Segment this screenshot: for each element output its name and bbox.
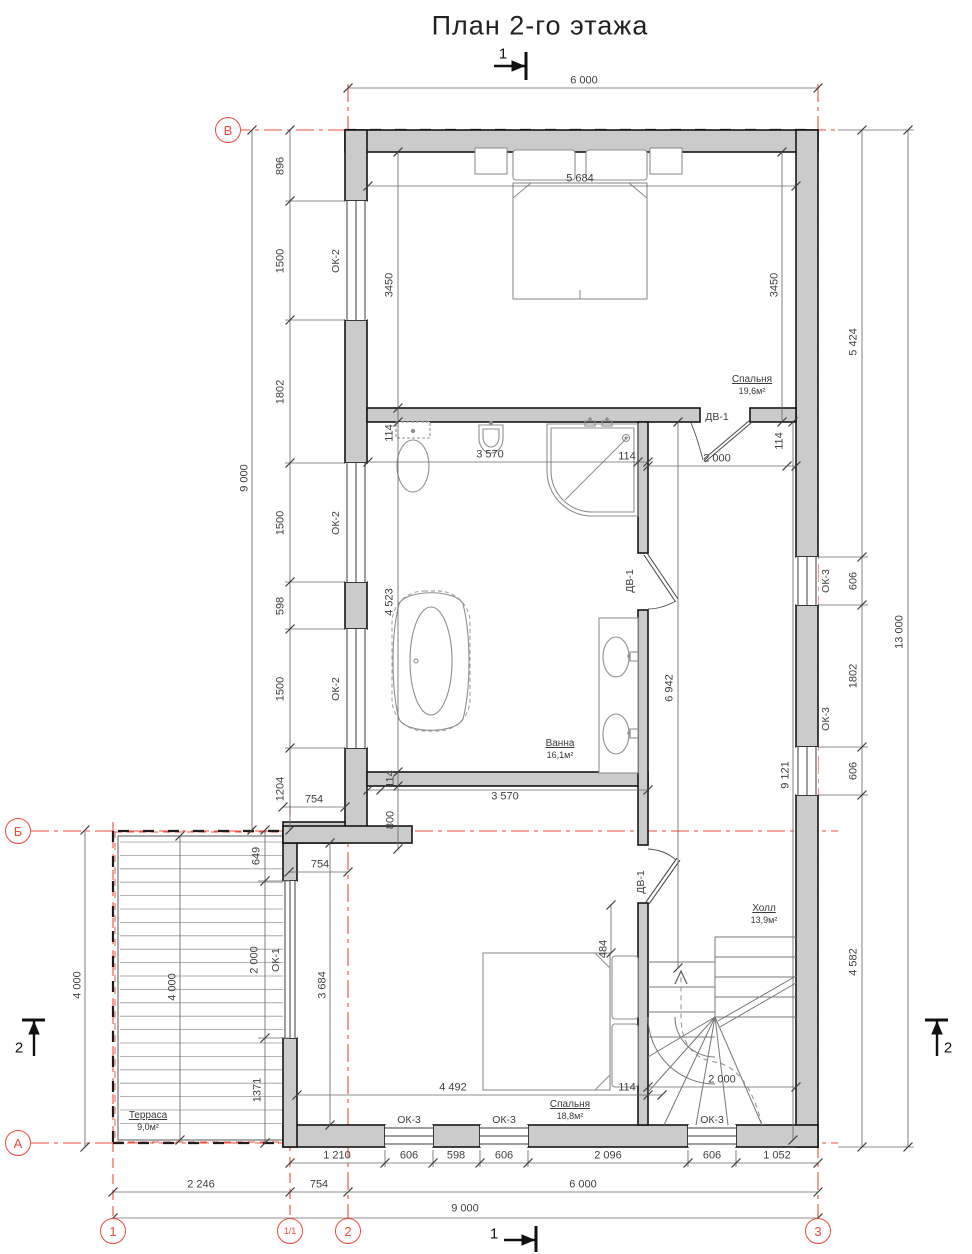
dim-754: 754 — [305, 795, 323, 806]
dim-754: 754 — [310, 1180, 328, 1191]
dim-bed-5684: 5 684 — [566, 174, 594, 185]
dim-2246: 2 246 — [187, 1180, 215, 1191]
dim-1371: 1371 — [253, 1078, 264, 1102]
room-area: 19,6м² — [732, 386, 772, 396]
dim-114: 114 — [618, 1083, 636, 1094]
dim-1802: 1802 — [276, 380, 287, 404]
dim-6942: 6 942 — [665, 674, 676, 702]
dim-754: 754 — [311, 860, 329, 871]
room-name: Спальня — [550, 1099, 590, 1111]
dim-800: 800 — [386, 811, 397, 829]
window-tag-ok3: ОК-3 — [821, 569, 832, 593]
dim-left-9000: 9 000 — [240, 464, 251, 492]
floor-plan-page: План 2-го этажа В Б А 1 1/1 2 3 1 1 2 2 … — [0, 0, 972, 1254]
axis-lines — [31, 84, 838, 1218]
dim-896: 896 — [276, 157, 287, 175]
section-mark-bottom — [504, 1226, 536, 1252]
axis-bubble-b: Б — [5, 818, 31, 844]
window-tag-ok2: ОК-2 — [331, 677, 342, 701]
dim-1052: 1 052 — [763, 1151, 791, 1162]
dim-649: 649 — [252, 847, 263, 865]
toilet — [396, 422, 430, 492]
dim-598: 598 — [276, 597, 287, 615]
dim-3450: 3450 — [770, 273, 781, 297]
floor-plan-drawing — [0, 0, 972, 1254]
nightstand — [650, 148, 682, 174]
window-tag-ok2: ОК-2 — [331, 249, 342, 273]
dim-door-2000: 2 000 — [703, 454, 731, 465]
dim-4523: 4 523 — [385, 588, 396, 616]
dim-bath-3570: 3 570 — [476, 450, 504, 461]
dim-3684: 3 684 — [318, 971, 329, 999]
drawing-title: План 2-го этажа — [432, 11, 649, 42]
dim-606: 606 — [849, 762, 860, 780]
room-area: 16,1м² — [546, 750, 575, 760]
dim-114: 114 — [618, 452, 636, 463]
window-tag-ok2: ОК-2 — [331, 511, 342, 535]
dim-114: 114 — [385, 424, 396, 442]
dim-606: 606 — [400, 1151, 418, 1162]
nightstand — [475, 148, 507, 174]
room-label-bedroom-top: Спальня 19,6м² — [732, 374, 772, 396]
axis-bubble-a: А — [5, 1130, 31, 1156]
dim-1204: 1204 — [276, 777, 287, 801]
dim-598: 598 — [447, 1151, 465, 1162]
dim-4000: 4 000 — [73, 971, 84, 999]
dim-484: 484 — [599, 940, 610, 958]
axis-bubble-1: 1 — [100, 1218, 126, 1244]
room-label-terrace: Терраса 9,0м² — [129, 1110, 167, 1132]
door-bathroom — [644, 553, 678, 609]
wall-axis-dashes — [113, 130, 818, 1147]
door-bedroom-bottom — [646, 849, 680, 904]
dim-6000: 6 000 — [569, 1180, 597, 1191]
axis-bubble-3: 3 — [805, 1218, 831, 1244]
dim-4492: 4 492 — [439, 1083, 467, 1094]
dim-1500: 1500 — [276, 249, 287, 273]
room-name: Спальня — [732, 374, 772, 386]
stairs — [648, 937, 796, 1125]
bathtub — [392, 591, 470, 731]
dim-9121: 9 121 — [781, 761, 792, 789]
door-tag-dv1: ДВ-1 — [636, 870, 647, 893]
dim-1500: 1500 — [276, 511, 287, 535]
vanity — [599, 618, 638, 773]
axis-bubble-2: 2 — [335, 1218, 361, 1244]
door-tag-dv1: ДВ-1 — [625, 569, 636, 592]
dim-terrace-2000: 2 000 — [250, 946, 261, 974]
dim-114: 114 — [775, 432, 786, 450]
room-area: 13,9м² — [751, 915, 778, 925]
room-name: Холл — [751, 903, 778, 915]
dim-9000: 9 000 — [451, 1204, 479, 1215]
room-label-bathroom: Ванна 16,1м² — [546, 738, 575, 760]
dim-1802: 1802 — [849, 664, 860, 688]
door-tag-dv1: ДВ-1 — [705, 412, 728, 423]
window-tag-ok3: ОК-3 — [821, 707, 832, 731]
room-label-bedroom-bottom: Спальня 18,8м² — [550, 1099, 590, 1121]
window-tag-ok3: ОК-3 — [700, 1115, 724, 1126]
room-name: Ванна — [546, 738, 575, 750]
dim-stairs-2000: 2 000 — [708, 1075, 736, 1086]
room-area: 9,0м² — [129, 1122, 167, 1132]
dim-1500: 1500 — [276, 677, 287, 701]
dim-3450: 3450 — [385, 273, 396, 297]
dim-5424: 5 424 — [849, 328, 860, 356]
dim-4000: 4 000 — [168, 973, 179, 1001]
dim-1210: 1 210 — [323, 1151, 351, 1162]
section-label-left: 2 — [15, 1040, 23, 1057]
pillow — [586, 150, 647, 180]
axis-bubble-v: В — [215, 117, 241, 143]
dim-2096: 2 096 — [594, 1151, 622, 1162]
bed-top — [475, 148, 682, 299]
dim-606: 606 — [495, 1151, 513, 1162]
room-area: 18,8м² — [550, 1111, 590, 1121]
dim-13000: 13 000 — [895, 615, 906, 649]
dim-4582: 4 582 — [849, 948, 860, 976]
dim-606: 606 — [703, 1151, 721, 1162]
section-label-bottom: 1 — [490, 1226, 498, 1243]
dim-114: 114 — [386, 770, 397, 788]
room-name: Терраса — [129, 1110, 167, 1122]
section-label-right: 2 — [944, 1040, 952, 1057]
room-label-hall: Холл 13,9м² — [751, 903, 778, 925]
section-label-top: 1 — [499, 46, 507, 63]
axis-bubble-1-1: 1/1 — [277, 1218, 303, 1244]
window-tag-ok3: ОК-3 — [492, 1115, 516, 1126]
window-tag-ok1: ОК-1 — [271, 948, 282, 972]
bed-bottom — [483, 953, 638, 1090]
dim-606: 606 — [849, 572, 860, 590]
dim-bath-3570-b: 3 570 — [491, 792, 519, 803]
shower — [547, 418, 638, 516]
window-tag-ok3: ОК-3 — [397, 1115, 421, 1126]
section-mark-left — [22, 1020, 45, 1056]
dim-top-6000: 6 000 — [570, 76, 598, 87]
